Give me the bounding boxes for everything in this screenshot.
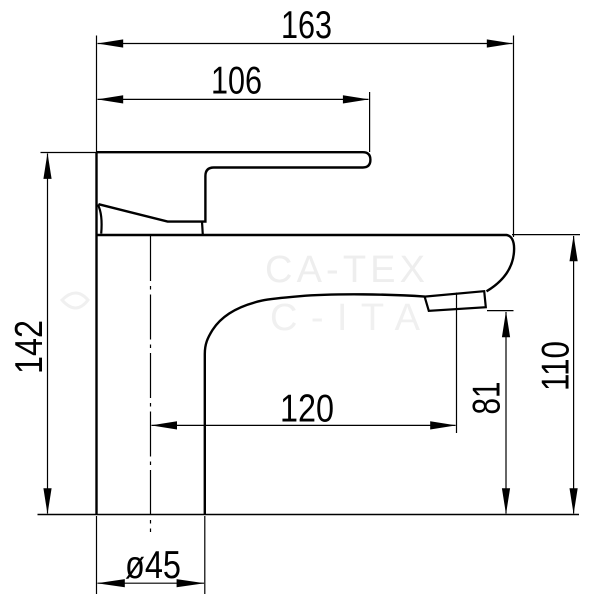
svg-text:CA-TEX: CA-TEX	[265, 249, 425, 291]
svg-text:106: 106	[211, 60, 262, 103]
svg-text:C-ITA: C-ITA	[270, 297, 421, 339]
svg-text:110: 110	[535, 341, 578, 391]
svg-text:81: 81	[466, 382, 509, 415]
svg-text:120: 120	[280, 388, 334, 431]
svg-text:142: 142	[8, 320, 51, 374]
svg-text:ø45: ø45	[125, 544, 181, 587]
svg-text:163: 163	[281, 4, 332, 47]
